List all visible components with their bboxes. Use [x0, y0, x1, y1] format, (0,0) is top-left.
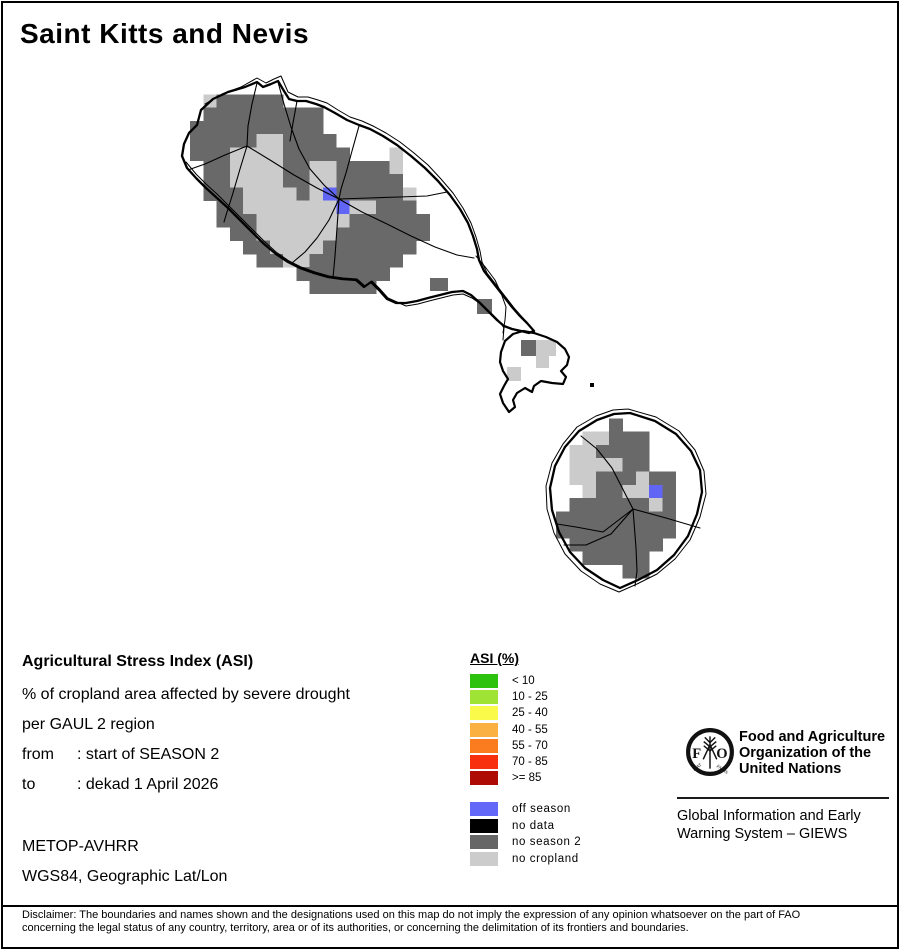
nevis-cell [596, 432, 610, 446]
saint-kitts-cell [270, 187, 284, 201]
saint-kitts-cell [323, 161, 337, 175]
period-to-label: to [22, 776, 77, 794]
saint-kitts-cell [310, 161, 324, 175]
saint-kitts-cell [257, 214, 271, 228]
asi-legend: ASI (%) < 1010 - 2525 - 4040 - 5555 - 70… [470, 650, 650, 786]
nevis-cell [636, 538, 650, 552]
saint-kitts-cell [296, 108, 310, 122]
saint-kitts-cell [310, 241, 324, 255]
saint-kitts-cell [230, 187, 244, 201]
saint-kitts-cell [270, 214, 284, 228]
asi-class-1-swatch [470, 690, 498, 704]
saint-kitts-cell [363, 267, 377, 281]
saint-kitts-cell [203, 161, 217, 175]
saint-kitts-cell [257, 187, 271, 201]
saint-kitts-cell [323, 281, 337, 295]
saint-kitts-cell [363, 161, 377, 175]
nevis-cell [636, 551, 650, 565]
saint-kitts-cell [283, 201, 297, 215]
fao-org-name: Food and Agriculture Organization of the… [739, 729, 885, 777]
saint-kitts-cell [310, 148, 324, 162]
saint-kitts-cell [230, 94, 244, 108]
nevis-cell [649, 472, 663, 486]
map-extra-cell [536, 356, 549, 368]
saint-kitts-cell [403, 187, 417, 201]
saint-kitts-cell [243, 134, 257, 148]
map-extra-cell [507, 367, 521, 381]
nevis-cell [609, 445, 623, 459]
saint-kitts-cell [390, 214, 404, 228]
saint-kitts-cell [283, 174, 297, 188]
nevis-cell [596, 551, 610, 565]
disclaimer-line2: concerning the legal status of any count… [22, 922, 689, 934]
nevis-cell [623, 458, 637, 472]
saint-kitts-cell [310, 281, 324, 295]
nevis-cell [583, 525, 597, 539]
asi-class-2-label: 25 - 40 [512, 707, 548, 719]
saint-kitts-cell [296, 187, 310, 201]
saint-kitts-cell [257, 134, 271, 148]
giews-line1: Global Information and Early [677, 808, 861, 826]
saint-kitts-cell [296, 241, 310, 255]
nevis-cell [569, 458, 583, 472]
saint-kitts-cell [243, 94, 257, 108]
asi-extra-3-label: no cropland [512, 853, 579, 865]
saint-kitts-cell [296, 161, 310, 175]
period-from-value: : start of SEASON 2 [77, 746, 219, 763]
projection-label: WGS84, Geographic Lat/Lon [22, 868, 227, 886]
saint-kitts-cell [363, 174, 377, 188]
saint-kitts-cell [310, 254, 324, 268]
fao-logo-letter-f: F [692, 746, 701, 762]
saint-kitts-cell [230, 227, 244, 241]
asi-extra-3-row: no cropland [470, 851, 670, 868]
saint-kitts-cell [363, 187, 377, 201]
saint-kitts-cell [376, 254, 390, 268]
saint-kitts-cell [190, 148, 204, 162]
nevis-cell [636, 498, 650, 512]
asi-class-0-swatch [470, 674, 498, 688]
asi-legend-classes: < 1010 - 2525 - 4040 - 5555 - 7070 - 85>… [470, 673, 650, 786]
saint-kitts-cell [310, 134, 324, 148]
asi-class-1-label: 10 - 25 [512, 691, 548, 703]
nevis-cell [662, 485, 676, 499]
nevis-cell [583, 458, 597, 472]
saint-kitts-cell [243, 121, 257, 135]
saint-kitts-cell [336, 281, 350, 295]
saint-kitts-cell [376, 174, 390, 188]
asi-class-3-swatch [470, 723, 498, 737]
nevis-cell [623, 565, 637, 579]
map-extra-cell [536, 340, 556, 356]
saint-kitts-cell [376, 161, 390, 175]
nevis-cell [609, 418, 623, 432]
saint-kitts-cell [203, 134, 217, 148]
map-extra-cell [521, 340, 536, 356]
saint-kitts-cell [217, 108, 231, 122]
nevis-cell [583, 485, 597, 499]
asi-class-5-row: 70 - 85 [470, 754, 650, 770]
saint-kitts-cell [323, 148, 337, 162]
saint-kitts-cell [230, 134, 244, 148]
saint-kitts-cell [230, 121, 244, 135]
nevis-cell [596, 472, 610, 486]
saint-kitts-cell [310, 108, 324, 122]
saint-kitts-cell [203, 121, 217, 135]
nevis-cell [623, 432, 637, 446]
fao-divider-line [677, 797, 889, 799]
saint-kitts-cell [416, 214, 430, 228]
saint-kitts-tail-thin [476, 256, 506, 333]
saint-kitts-cell [296, 227, 310, 241]
saint-kitts-cell [217, 161, 231, 175]
asi-extra-0-swatch [470, 802, 498, 816]
nevis-cell [609, 485, 623, 499]
nevis-cell [636, 432, 650, 446]
asi-legend-extra: off seasonno datano season 2no cropland [470, 801, 670, 867]
saint-kitts-cell [363, 241, 377, 255]
saint-kitts-cell [243, 174, 257, 188]
saint-kitts-cell [336, 254, 350, 268]
saint-kitts-cell [376, 201, 390, 215]
nevis-cell [583, 498, 597, 512]
saint-kitts-cell [403, 201, 417, 215]
saint-kitts-cell [390, 174, 404, 188]
nevis-cell [636, 485, 650, 499]
saint-kitts-cell [296, 214, 310, 228]
saint-kitts-cell [390, 227, 404, 241]
asi-class-6-label: >= 85 [512, 772, 541, 784]
nevis-cell [569, 445, 583, 459]
saint-kitts-cell [283, 187, 297, 201]
asi-extra-1-label: no data [512, 820, 555, 832]
nevis-cell [636, 472, 650, 486]
saint-kitts-cell [257, 161, 271, 175]
nevis-cell [649, 498, 663, 512]
asi-extra-1-swatch [470, 819, 498, 833]
saint-kitts-cell [270, 121, 284, 135]
saint-kitts-cell [323, 241, 337, 255]
asi-extra-2-row: no season 2 [470, 834, 670, 851]
saint-kitts-cell [230, 148, 244, 162]
saint-kitts-cell [270, 227, 284, 241]
saint-kitts-cell [296, 174, 310, 188]
nevis-cell [623, 538, 637, 552]
saint-kitts-cell [390, 241, 404, 255]
saint-kitts-cell [270, 108, 284, 122]
saint-kitts-cell [230, 108, 244, 122]
saint-kitts-cell [390, 187, 404, 201]
saint-kitts-cell [376, 241, 390, 255]
saint-kitts-cell [376, 214, 390, 228]
asi-class-3-row: 40 - 55 [470, 722, 650, 738]
saint-kitts-cell [296, 201, 310, 215]
saint-kitts-cell [323, 134, 337, 148]
nevis-cell [609, 551, 623, 565]
saint-kitts-cell [217, 121, 231, 135]
saint-kitts-cell [283, 227, 297, 241]
saint-kitts-cell [336, 227, 350, 241]
period-to-value: : dekad 1 April 2026 [77, 776, 218, 793]
saint-kitts-cell [390, 254, 404, 268]
saint-kitts-cell [350, 227, 364, 241]
saint-kitts-cell [283, 241, 297, 255]
map-subtitle-line2: per GAUL 2 region [22, 716, 155, 734]
period-from-label: from [22, 746, 77, 764]
saint-kitts-cell [350, 201, 364, 215]
nevis-cell [649, 485, 663, 499]
nevis-cell [596, 458, 610, 472]
nevis-cell [569, 498, 583, 512]
asi-class-3-label: 40 - 55 [512, 724, 548, 736]
saint-kitts-cell [390, 161, 404, 175]
nevis-cell [569, 472, 583, 486]
saint-kitts-cell [217, 174, 231, 188]
asi-extra-3-swatch [470, 852, 498, 866]
nevis-cell [662, 498, 676, 512]
saint-kitts-cell [403, 227, 417, 241]
saint-kitts-cell [270, 174, 284, 188]
saint-kitts-cell [363, 201, 377, 215]
asi-class-1-row: 10 - 25 [470, 689, 650, 705]
asi-class-2-row: 25 - 40 [470, 705, 650, 721]
saint-kitts-cell [403, 214, 417, 228]
fao-logo: F O FIAT PANIS [685, 727, 735, 777]
nevis-cell [662, 511, 676, 525]
saint-kitts-cell [350, 214, 364, 228]
disclaimer-line1: Disclaimer: The boundaries and names sho… [22, 909, 800, 921]
saint-kitts-cell [203, 187, 217, 201]
saint-kitts-cell [376, 267, 390, 281]
nevis-cell [623, 445, 637, 459]
saint-kitts-cell [350, 161, 364, 175]
saint-kitts-cell [350, 241, 364, 255]
nevis-cell [662, 525, 676, 539]
saint-kitts-cell [323, 227, 337, 241]
nevis-cell [583, 551, 597, 565]
asi-extra-0-label: off season [512, 803, 571, 815]
sensor-label: METOP-AVHRR [22, 838, 139, 856]
saint-kitts-cell [243, 201, 257, 215]
saint-kitts-cell [257, 201, 271, 215]
period-from-line: from: start of SEASON 2 [22, 746, 219, 764]
nevis-cell [609, 498, 623, 512]
saint-kitts-cell [203, 108, 217, 122]
saint-kitts-cell [190, 134, 204, 148]
saint-kitts-cell [296, 121, 310, 135]
nevis-cell [649, 538, 663, 552]
saint-kitts-cell [270, 134, 284, 148]
nevis-cell [623, 551, 637, 565]
asi-class-0-label: < 10 [512, 675, 535, 687]
nevis-cell [596, 498, 610, 512]
saint-kitts-cell [376, 227, 390, 241]
islet-dot [590, 383, 594, 387]
nevis-cell [623, 472, 637, 486]
saint-kitts-cell [270, 201, 284, 215]
giews-line2: Warning System – GIEWS [677, 826, 861, 844]
asi-class-2-swatch [470, 706, 498, 720]
saint-kitts-cell [336, 241, 350, 255]
saint-kitts-cell [243, 148, 257, 162]
asi-class-5-label: 70 - 85 [512, 756, 548, 768]
nevis-cell [556, 511, 570, 525]
asi-extra-1-row: no data [470, 818, 670, 835]
fao-logo-letter-o: O [716, 746, 727, 762]
saint-kitts-cell [363, 227, 377, 241]
nevis-cell [609, 472, 623, 486]
saint-kitts-cell [310, 201, 324, 215]
saint-kitts-cell [257, 254, 271, 268]
asi-extra-2-label: no season 2 [512, 836, 581, 848]
asi-legend-extra-rows: off seasonno datano season 2no cropland [470, 801, 670, 867]
fao-org-line2: Organization of the [739, 745, 885, 761]
map-subtitle-heading: Agricultural Stress Index (ASI) [22, 653, 253, 671]
nevis-cell [609, 458, 623, 472]
saint-kitts-cell [217, 148, 231, 162]
fao-org-line1: Food and Agriculture [739, 729, 885, 745]
saint-kitts-cell [283, 148, 297, 162]
saint-kitts-cell [310, 187, 324, 201]
period-to-line: to: dekad 1 April 2026 [22, 776, 218, 794]
saint-kitts-cell [270, 148, 284, 162]
saint-kitts-cell [217, 134, 231, 148]
nevis-cell [636, 445, 650, 459]
saint-kitts-cell [296, 134, 310, 148]
nevis-cell [583, 472, 597, 486]
map-subtitle-line1: % of cropland area affected by severe dr… [22, 686, 350, 704]
saint-kitts-cell [310, 121, 324, 135]
saint-kitts-cell [283, 214, 297, 228]
saint-kitts-cell [257, 94, 271, 108]
asi-extra-0-row: off season [470, 801, 670, 818]
asi-class-4-swatch [470, 739, 498, 753]
map-extra-cell [430, 278, 448, 291]
asi-class-0-row: < 10 [470, 673, 650, 689]
nevis-cell [609, 432, 623, 446]
saint-kitts-cell [350, 254, 364, 268]
disclaimer-text: Disclaimer: The boundaries and names sho… [22, 909, 884, 935]
nevis-cell [596, 485, 610, 499]
giews-name: Global Information and Early Warning Sys… [677, 808, 861, 843]
saint-kitts-cell [390, 201, 404, 215]
nevis-cell [662, 472, 676, 486]
nevis-cell [583, 511, 597, 525]
saint-kitts-cell [243, 241, 257, 255]
asi-class-6-swatch [470, 771, 498, 785]
saint-kitts-cell [336, 148, 350, 162]
saint-kitts-cell [363, 254, 377, 268]
saint-kitts-cell [257, 121, 271, 135]
saint-kitts-cell [243, 161, 257, 175]
asi-class-5-swatch [470, 755, 498, 769]
saint-kitts-cell [376, 187, 390, 201]
nevis-cell [569, 511, 583, 525]
saint-kitts-cell [403, 241, 417, 255]
disclaimer-divider [2, 905, 898, 907]
asi-class-4-row: 55 - 70 [470, 738, 650, 754]
asi-class-6-row: >= 85 [470, 770, 650, 786]
asi-legend-title: ASI (%) [470, 650, 650, 666]
nevis-cell [636, 525, 650, 539]
saint-kitts-cell [350, 174, 364, 188]
nevis-cell [636, 458, 650, 472]
saint-kitts-cell [217, 214, 231, 228]
saint-kitts-cell [296, 148, 310, 162]
nevis-cell [596, 511, 610, 525]
asi-class-4-label: 55 - 70 [512, 740, 548, 752]
nevis-cell [609, 538, 623, 552]
saint-kitts-cell [310, 214, 324, 228]
saint-kitts-cell [257, 174, 271, 188]
fao-org-line3: United Nations [739, 761, 885, 777]
nevis-cell [649, 525, 663, 539]
asi-extra-2-swatch [470, 835, 498, 849]
nevis-cell [609, 525, 623, 539]
saint-kitts-cell [243, 187, 257, 201]
saint-kitts-cell [257, 108, 271, 122]
